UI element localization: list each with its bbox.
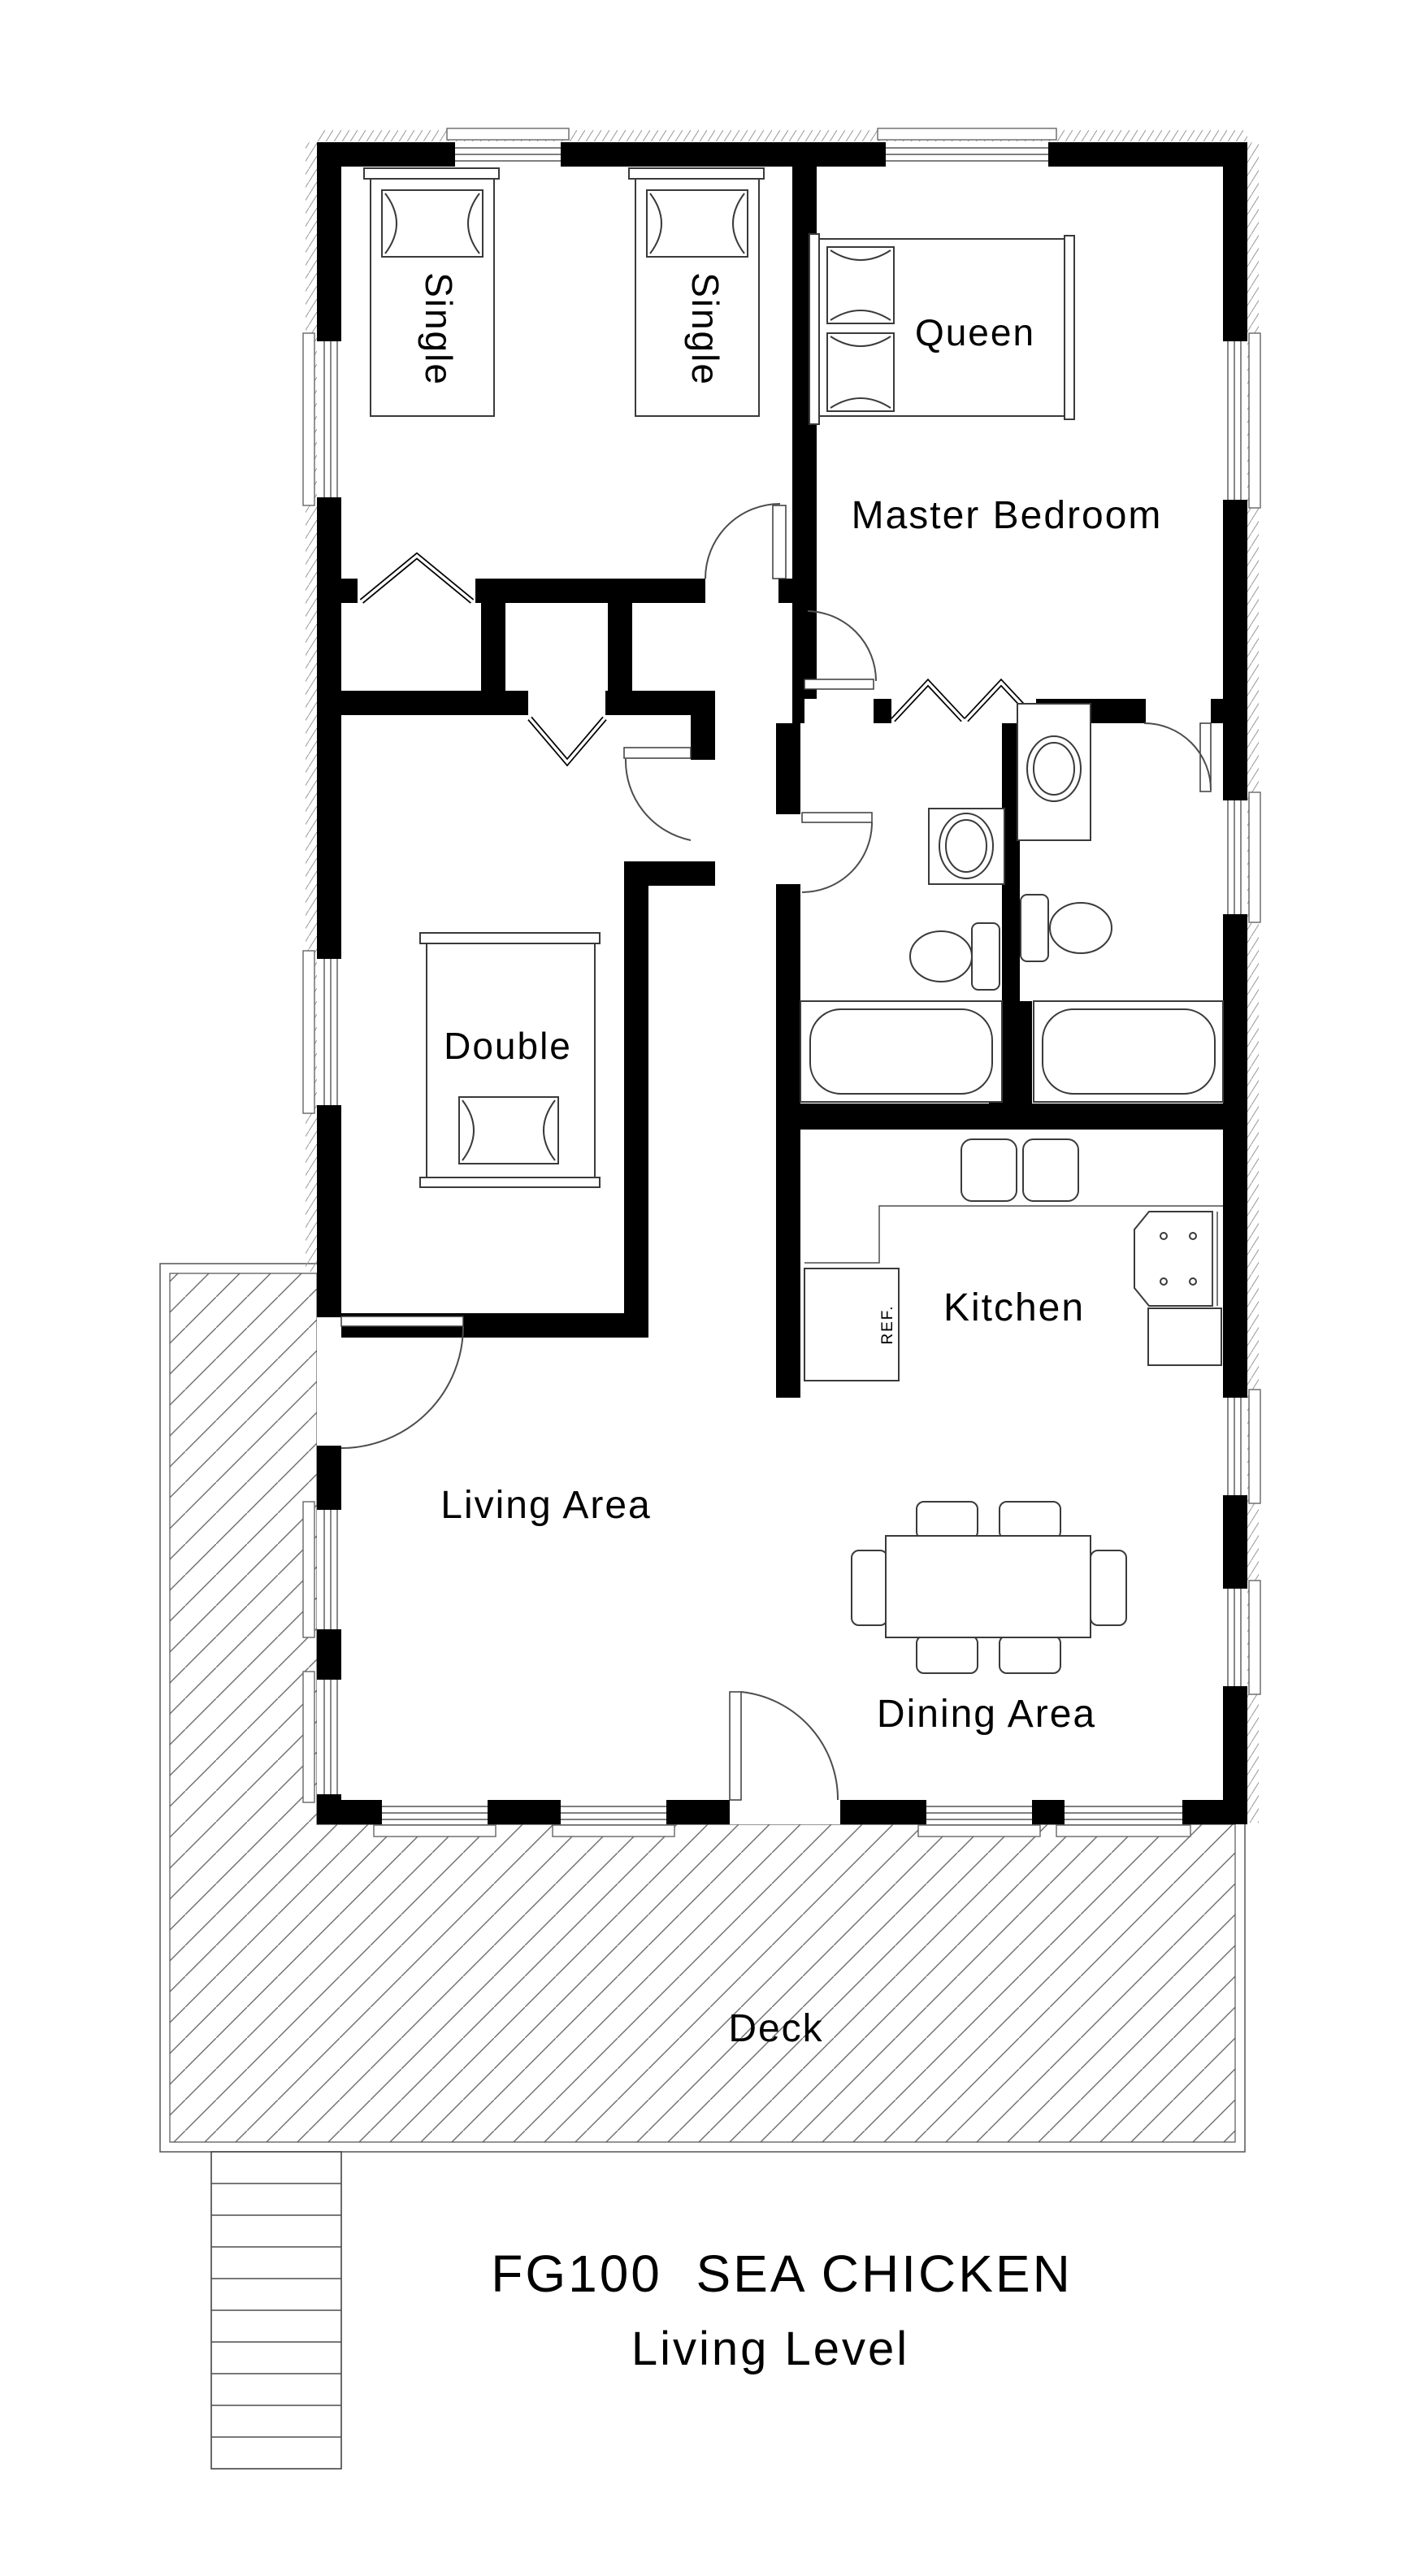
queen-bed-label: Queen	[915, 311, 1035, 353]
bathtub	[1034, 1001, 1223, 1102]
single-bed-1-label: Single	[418, 272, 460, 386]
stairs	[211, 2152, 341, 2469]
dining-chair	[917, 1502, 978, 1539]
dining-chair	[1000, 1502, 1060, 1539]
bathtub	[800, 1001, 1002, 1102]
floor-plan: REF. Single Single Queen Master Bedroom …	[0, 0, 1418, 2576]
master-bedroom-label: Master Bedroom	[852, 494, 1163, 537]
title-block: FG100 SEA CHICKEN Living Level	[491, 2244, 1073, 2375]
dining-table	[886, 1536, 1091, 1637]
plan-subtitle: Living Level	[631, 2322, 909, 2375]
vanity-sink	[929, 809, 1004, 884]
living-area-label: Living Area	[440, 1484, 652, 1527]
dining-chair	[1091, 1550, 1126, 1625]
dining-area-label: Dining Area	[877, 1693, 1096, 1736]
kitchen-label: Kitchen	[943, 1286, 1085, 1329]
refrigerator-label: REF.	[879, 1304, 896, 1344]
dining-chair	[852, 1550, 887, 1625]
stove	[1134, 1212, 1217, 1306]
dining-chair	[917, 1636, 978, 1673]
vanity-sink	[1017, 704, 1091, 840]
double-bed-label: Double	[444, 1025, 572, 1067]
kitchen-cabinet	[1148, 1308, 1221, 1365]
plan-title: FG100 SEA CHICKEN	[491, 2244, 1073, 2303]
refrigerator: REF.	[804, 1268, 899, 1381]
single-bed-2-label: Single	[684, 272, 726, 386]
deck-label: Deck	[728, 2007, 823, 2050]
dining-chair	[1000, 1636, 1060, 1673]
